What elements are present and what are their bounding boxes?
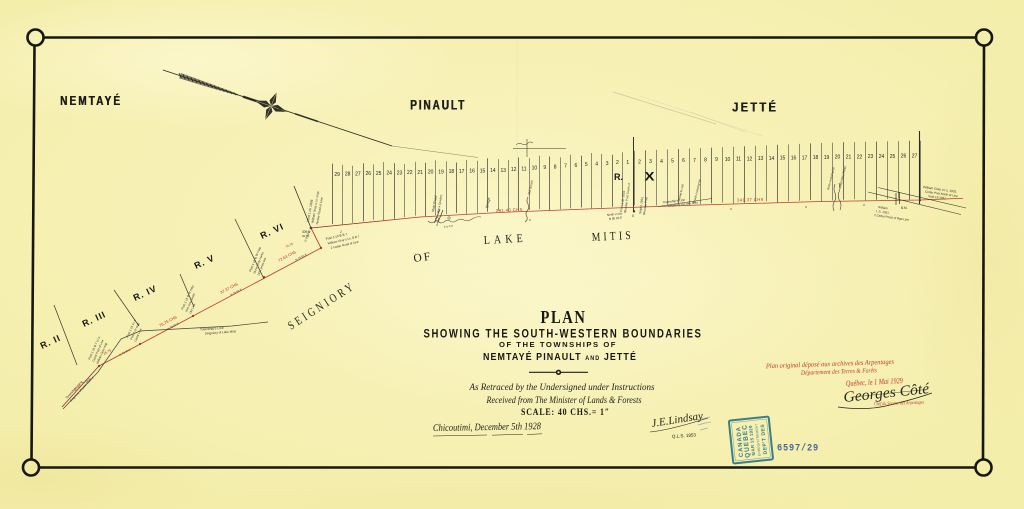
svg-text:3: 3 bbox=[649, 159, 652, 165]
svg-text:24: 24 bbox=[386, 171, 392, 177]
svg-text:o: o bbox=[863, 203, 865, 207]
svg-text:8: 8 bbox=[704, 158, 707, 164]
svg-text:6: 6 bbox=[575, 163, 578, 169]
svg-text:23: 23 bbox=[868, 154, 874, 160]
svg-text:14: 14 bbox=[490, 168, 496, 174]
svg-text:7: 7 bbox=[693, 158, 696, 164]
svg-text:o: o bbox=[436, 223, 438, 227]
svg-text:16: 16 bbox=[791, 156, 797, 162]
svg-text:PINAULT: PINAULT bbox=[410, 98, 466, 114]
svg-text:1: 1 bbox=[626, 160, 629, 166]
svg-text:16: 16 bbox=[469, 169, 475, 175]
svg-text:SHOWING THE SOUTH-WESTERN B: SHOWING THE SOUTH-WESTERN BOUNDARIES bbox=[424, 327, 703, 341]
svg-text:25: 25 bbox=[890, 154, 896, 160]
svg-text:B.M.: B.M. bbox=[901, 206, 908, 210]
svg-text:18: 18 bbox=[449, 169, 455, 175]
svg-text:SCALE: 40 CHS.= 1″: SCALE: 40 CHS.= 1″ bbox=[521, 407, 610, 417]
svg-text:20: 20 bbox=[428, 170, 434, 176]
svg-text:15: 15 bbox=[480, 168, 486, 174]
svg-text:As Retraced by the Undersigned: As Retraced by the Undersigned under Ins… bbox=[469, 383, 655, 393]
svg-text:12: 12 bbox=[511, 167, 517, 173]
svg-text:10: 10 bbox=[532, 166, 538, 172]
svg-text:27: 27 bbox=[912, 154, 918, 160]
svg-text:6597/29: 6597/29 bbox=[777, 443, 819, 455]
svg-text:PLAN: PLAN bbox=[541, 307, 587, 327]
svg-text:LAKE: LAKE bbox=[483, 231, 527, 247]
svg-text:341.37 CHS: 341.37 CHS bbox=[737, 197, 764, 203]
svg-text:14: 14 bbox=[769, 156, 775, 162]
svg-text:20: 20 bbox=[835, 155, 841, 161]
svg-text:MITIS: MITIS bbox=[591, 228, 634, 244]
svg-text:25: 25 bbox=[376, 171, 382, 177]
svg-text:28: 28 bbox=[345, 172, 351, 178]
svg-text:12: 12 bbox=[747, 156, 753, 162]
svg-text:17: 17 bbox=[802, 155, 808, 161]
svg-text:24: 24 bbox=[879, 154, 885, 160]
svg-text:13: 13 bbox=[758, 156, 764, 162]
svg-text:18: 18 bbox=[813, 155, 819, 161]
svg-text:NEMTAYÉ PINAULT AND JETTÉ: NEMTAYÉ PINAULT AND JETTÉ bbox=[483, 351, 637, 363]
svg-text:19: 19 bbox=[824, 155, 830, 161]
svg-text:22: 22 bbox=[857, 154, 863, 160]
svg-text:17: 17 bbox=[459, 169, 465, 175]
svg-text:21: 21 bbox=[846, 155, 852, 161]
svg-text:29: 29 bbox=[334, 172, 340, 178]
svg-text:22: 22 bbox=[407, 170, 413, 176]
svg-text:7: 7 bbox=[564, 164, 567, 170]
svg-text:3: 3 bbox=[606, 161, 609, 167]
svg-text:o: o bbox=[529, 218, 531, 222]
svg-text:15: 15 bbox=[780, 156, 786, 162]
svg-text:27: 27 bbox=[355, 172, 361, 178]
svg-text:26: 26 bbox=[366, 171, 372, 177]
svg-text:8: 8 bbox=[632, 214, 634, 218]
svg-text:5: 5 bbox=[585, 162, 588, 168]
svg-text:9: 9 bbox=[715, 157, 718, 163]
svg-text:9: 9 bbox=[543, 165, 546, 171]
svg-text:8: 8 bbox=[554, 164, 557, 170]
svg-text:6: 6 bbox=[682, 158, 685, 164]
svg-text:Chicoutimi, December 5th 1928: Chicoutimi, December 5th 1928 bbox=[433, 421, 541, 434]
svg-text:10: 10 bbox=[725, 157, 731, 163]
svg-text:11: 11 bbox=[521, 166, 526, 172]
svg-text:11: 11 bbox=[736, 157, 741, 163]
svg-text:X: X bbox=[645, 170, 655, 184]
svg-text:13: 13 bbox=[501, 168, 507, 174]
svg-text:26: 26 bbox=[901, 154, 907, 160]
svg-text:2: 2 bbox=[616, 160, 619, 166]
svg-text:23: 23 bbox=[397, 171, 403, 177]
svg-text:JETTÉ: JETTÉ bbox=[732, 100, 778, 115]
svg-text:4: 4 bbox=[660, 159, 663, 165]
svg-text:2: 2 bbox=[638, 159, 641, 165]
svg-text:o: o bbox=[805, 205, 807, 209]
svg-text:R.: R. bbox=[614, 172, 623, 182]
svg-text:5: 5 bbox=[671, 159, 674, 165]
svg-text:4: 4 bbox=[595, 162, 598, 168]
svg-text:19: 19 bbox=[438, 169, 444, 175]
svg-text:NEMTAYÉ: NEMTAYÉ bbox=[60, 93, 122, 108]
svg-text:o: o bbox=[730, 207, 732, 211]
svg-text:OF THE TOWNSHIPS OF: OF THE TOWNSHIPS OF bbox=[499, 340, 617, 349]
svg-text:Received from The Minister of: Received from The Minister of Lands & Fo… bbox=[486, 395, 642, 406]
svg-text:21: 21 bbox=[417, 170, 423, 176]
